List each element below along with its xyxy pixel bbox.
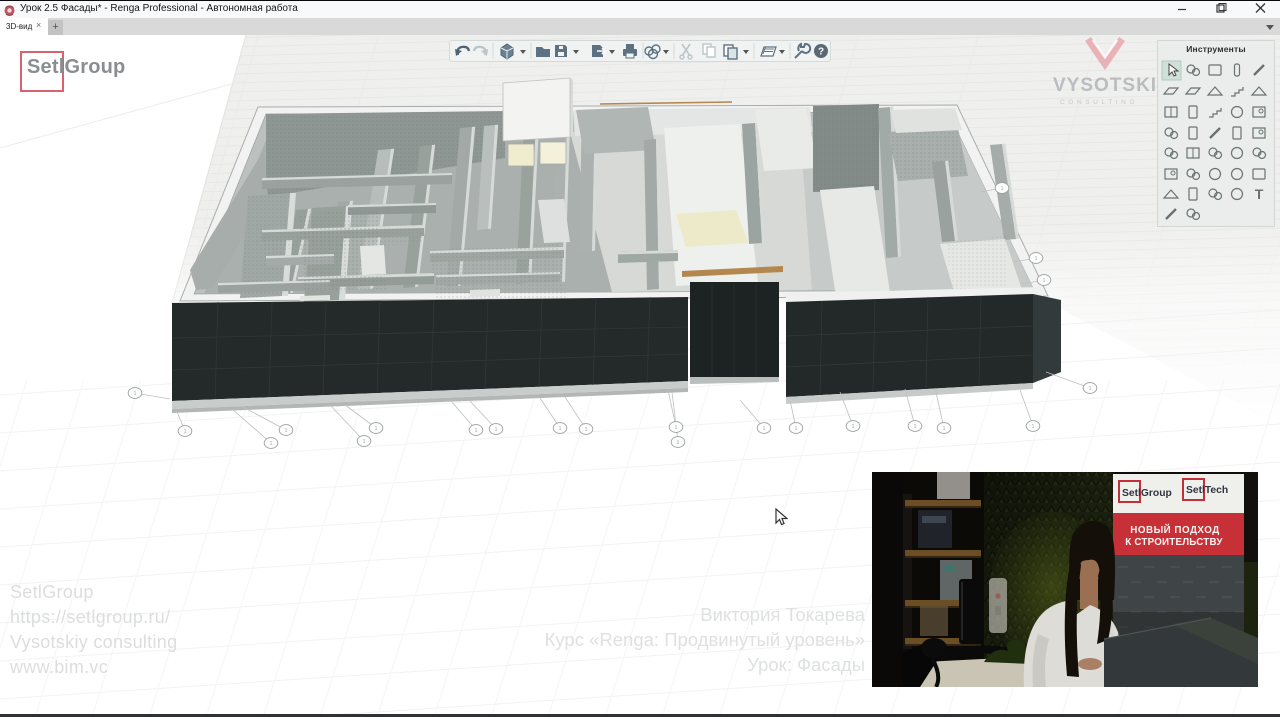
svg-text:SetlGroup: SetlGroup xyxy=(1122,488,1172,499)
svg-text:1: 1 xyxy=(852,424,855,430)
svg-text:1: 1 xyxy=(675,425,678,431)
svg-text:1: 1 xyxy=(1043,278,1046,284)
svg-text:1: 1 xyxy=(270,441,273,447)
svg-text:1: 1 xyxy=(184,429,187,435)
svg-text:1: 1 xyxy=(585,427,588,433)
svg-text:1: 1 xyxy=(363,439,366,445)
svg-text:1: 1 xyxy=(475,428,478,434)
svg-text:1: 1 xyxy=(1032,424,1035,430)
svg-text:К СТРОИТЕЛЬСТВУ: К СТРОИТЕЛЬСТВУ xyxy=(1125,537,1223,548)
svg-text:1: 1 xyxy=(1035,256,1038,262)
svg-text:1: 1 xyxy=(795,426,798,432)
svg-text:1: 1 xyxy=(495,427,498,433)
svg-text:1: 1 xyxy=(375,426,378,432)
svg-text:1: 1 xyxy=(134,391,137,397)
svg-text:1: 1 xyxy=(914,424,917,430)
svg-text:SetlTech: SetlTech xyxy=(1186,485,1228,496)
svg-text:1: 1 xyxy=(559,426,562,432)
svg-text:1: 1 xyxy=(763,426,766,432)
svg-text:1: 1 xyxy=(943,426,946,432)
svg-text:1: 1 xyxy=(1089,386,1092,392)
svg-text:1: 1 xyxy=(285,428,288,434)
svg-text:T: T xyxy=(1255,186,1264,202)
svg-text:НОВЫЙ ПОДХОД: НОВЫЙ ПОДХОД xyxy=(1130,524,1219,536)
svg-text:1: 1 xyxy=(677,440,680,446)
